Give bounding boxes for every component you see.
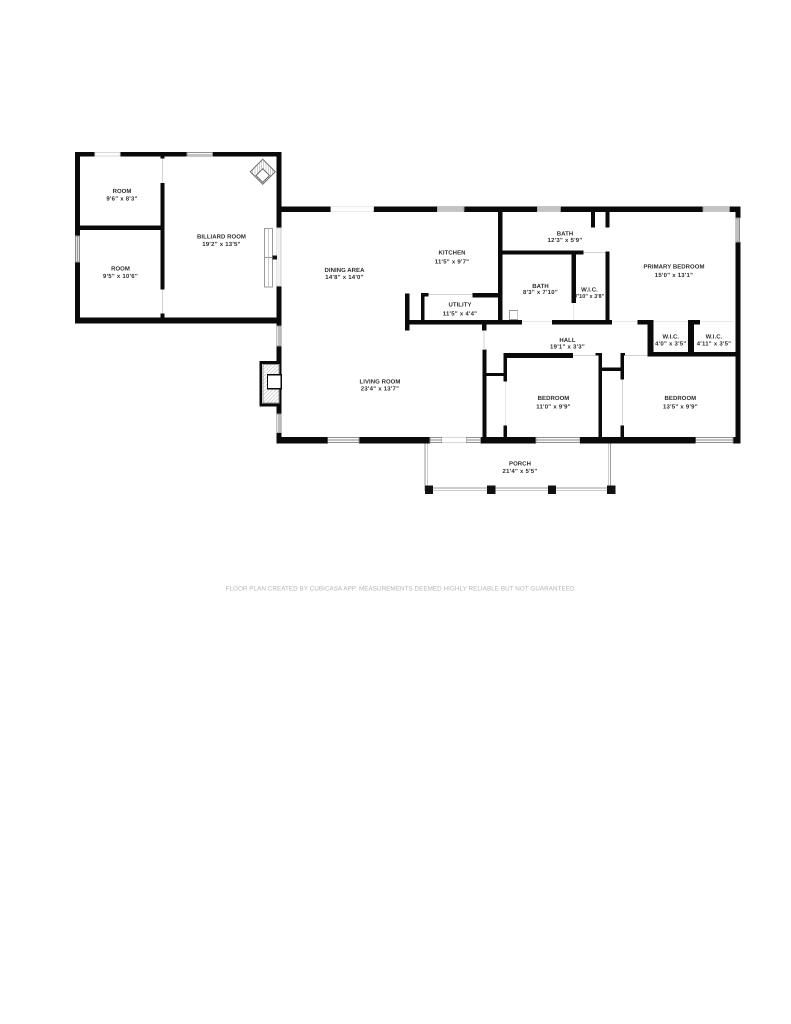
svg-text:11'0" x 9'9": 11'0" x 9'9" (536, 404, 571, 411)
svg-text:9'5" x 10'6": 9'5" x 10'6" (103, 273, 138, 280)
svg-text:W.I.C.: W.I.C. (706, 333, 723, 340)
svg-text:PORCH: PORCH (509, 461, 531, 468)
svg-text:ROOM: ROOM (111, 266, 130, 273)
svg-text:8'3" x 7'10": 8'3" x 7'10" (523, 289, 558, 296)
svg-text:11'5" x 4'4": 11'5" x 4'4" (443, 311, 478, 318)
svg-text:KITCHEN: KITCHEN (438, 250, 465, 257)
svg-text:PRIMARY BEDROOM: PRIMARY BEDROOM (643, 263, 704, 270)
svg-text:4'11" x 3'5": 4'11" x 3'5" (697, 341, 732, 348)
svg-text:19'1" x 3'3": 19'1" x 3'3" (550, 344, 585, 351)
svg-text:15'0" x 13'1": 15'0" x 13'1" (655, 272, 694, 279)
svg-text:4'0" x 3'5": 4'0" x 3'5" (655, 341, 686, 348)
svg-text:ROOM: ROOM (113, 188, 132, 195)
svg-text:13'5" x 9'9": 13'5" x 9'9" (663, 404, 698, 411)
svg-text:19'2" x 13'5": 19'2" x 13'5" (202, 241, 241, 248)
svg-text:14'8" x 14'0": 14'8" x 14'0" (325, 274, 364, 281)
svg-text:UTILITY: UTILITY (448, 302, 471, 309)
svg-text:11'5" x 9'7": 11'5" x 9'7" (435, 259, 470, 266)
svg-text:FLOOR PLAN CREATED BY CUBICASA: FLOOR PLAN CREATED BY CUBICASA APP. MEAS… (226, 586, 577, 593)
svg-text:BEDROOM: BEDROOM (665, 395, 697, 402)
svg-text:LIVING ROOM: LIVING ROOM (360, 379, 401, 386)
svg-text:DINING AREA: DINING AREA (325, 267, 366, 274)
svg-text:7'10" x 3'8": 7'10" x 3'8" (575, 294, 605, 300)
svg-text:HALL: HALL (559, 337, 575, 344)
svg-text:23'4" x 13'7": 23'4" x 13'7" (361, 386, 400, 393)
svg-text:BATH: BATH (557, 231, 573, 238)
svg-text:W.I.C.: W.I.C. (581, 287, 598, 294)
svg-text:9'6" x 8'3": 9'6" x 8'3" (106, 195, 137, 202)
svg-text:W.I.C.: W.I.C. (662, 333, 679, 340)
svg-text:BEDROOM: BEDROOM (538, 395, 570, 402)
svg-text:12'3" x 5'9": 12'3" x 5'9" (548, 237, 583, 244)
svg-text:21'4" x 5'5": 21'4" x 5'5" (503, 468, 538, 475)
svg-text:BILLIARD ROOM: BILLIARD ROOM (197, 233, 246, 240)
